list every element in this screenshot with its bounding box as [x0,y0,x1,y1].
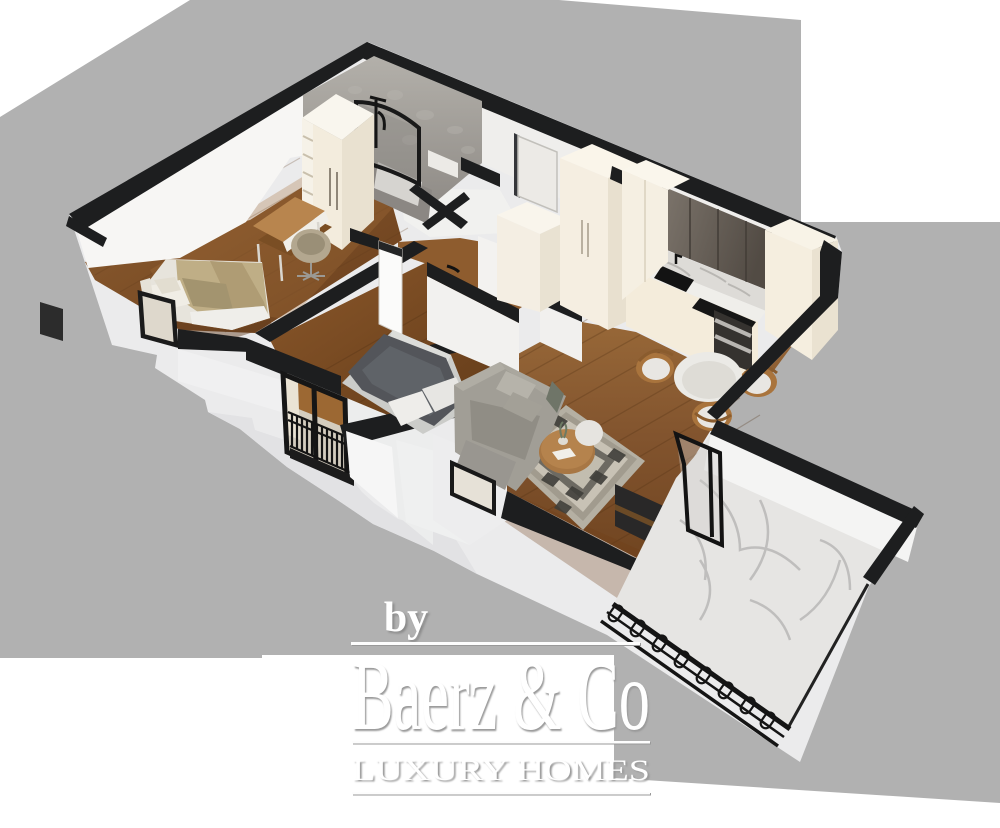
svg-text:LUXURY HOMES: LUXURY HOMES [352,754,650,787]
svg-text:by: by [384,595,428,641]
svg-text:Baerz & Co: Baerz & Co [352,640,650,751]
